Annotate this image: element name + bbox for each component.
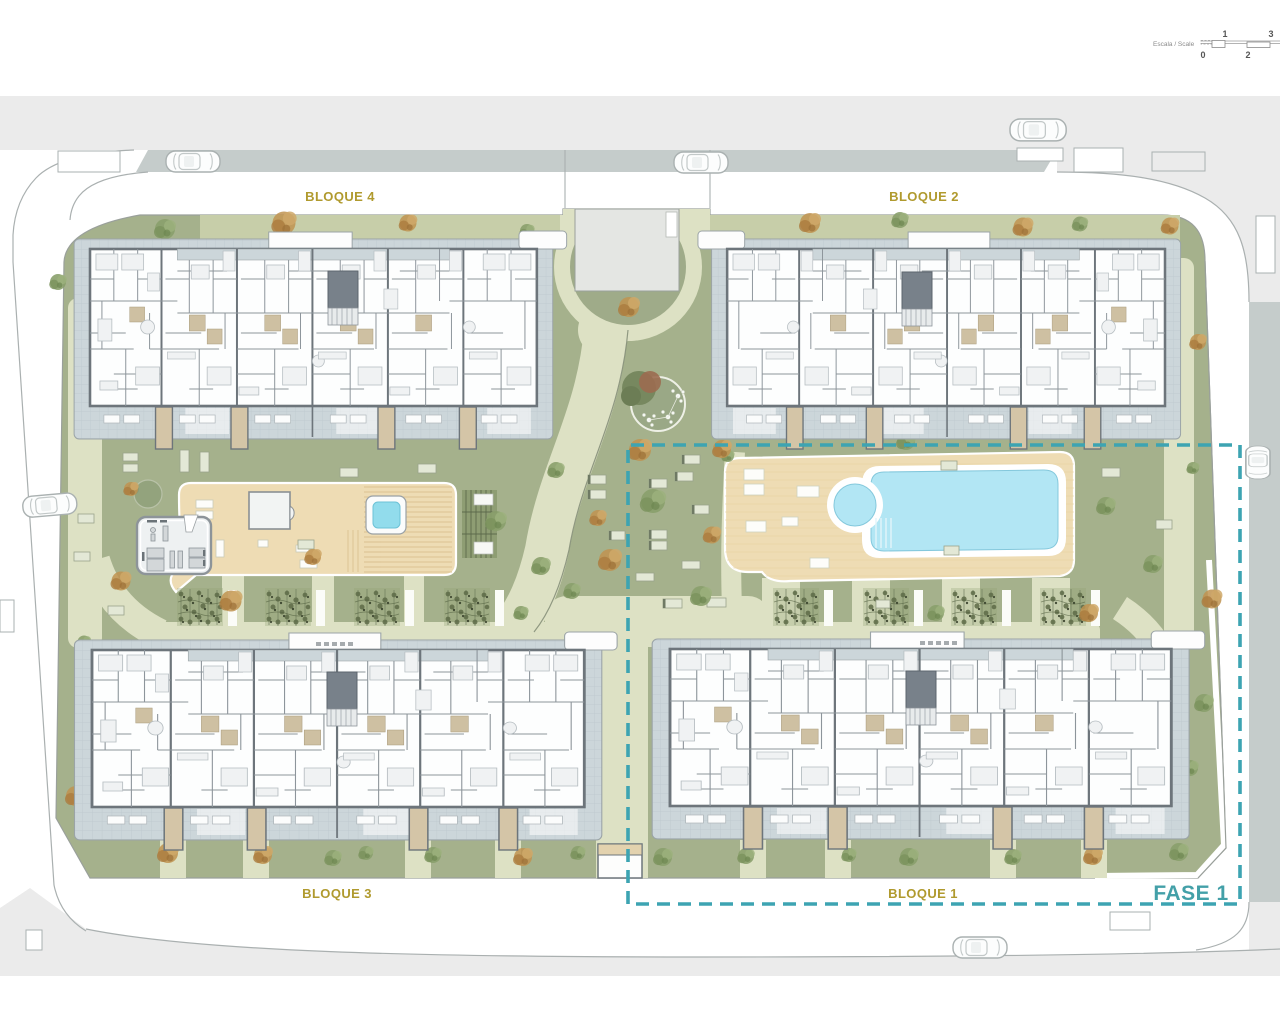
svg-text:2: 2 [1245, 50, 1250, 60]
svg-text:BLOQUE 2: BLOQUE 2 [889, 189, 959, 204]
svg-text:1: 1 [1222, 29, 1227, 39]
svg-text:Escala / Scale: Escala / Scale [1153, 41, 1195, 48]
svg-text:BLOQUE 4: BLOQUE 4 [305, 189, 375, 204]
svg-text:0: 0 [1200, 50, 1205, 60]
svg-text:3: 3 [1268, 29, 1273, 39]
svg-text:FASE 1: FASE 1 [1153, 882, 1228, 905]
svg-text:BLOQUE 1: BLOQUE 1 [888, 886, 958, 901]
svg-text:BLOQUE 3: BLOQUE 3 [302, 886, 372, 901]
